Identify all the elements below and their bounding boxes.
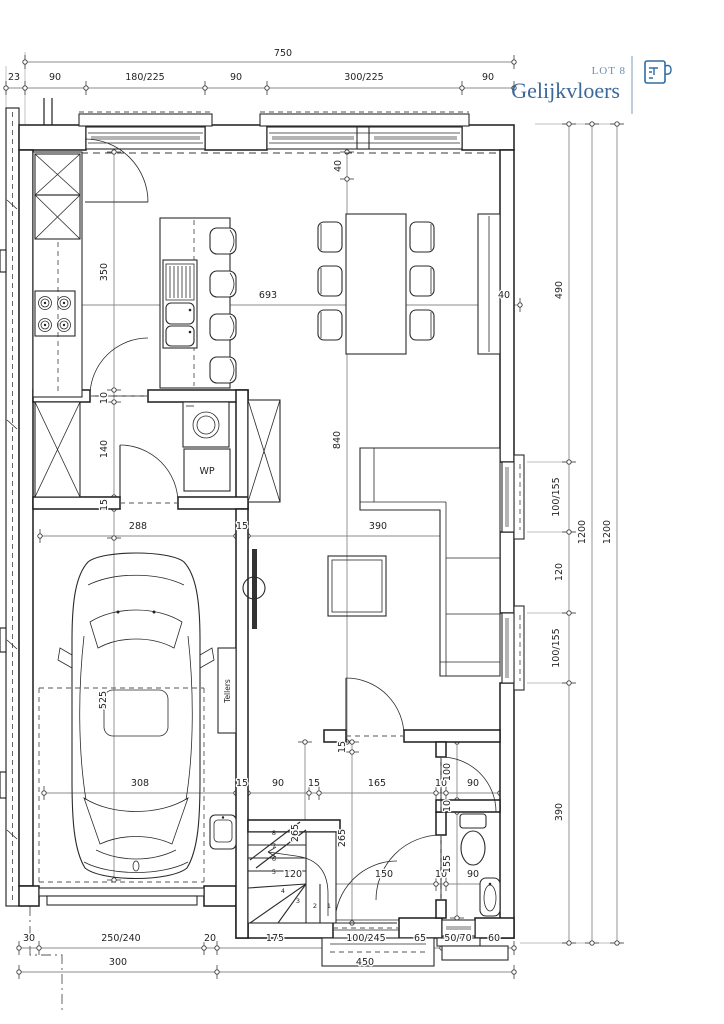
dimension-label: 15: [99, 499, 110, 511]
header: LOT 8 Gelijkvloers: [511, 56, 671, 114]
dimension-label: 90: [467, 869, 479, 880]
dimension-label: 150: [375, 869, 393, 880]
dimension-label: 40: [333, 160, 344, 172]
coffee-table: [328, 556, 386, 616]
dimension-label: 90: [467, 778, 479, 789]
dimension-label: 60: [488, 933, 500, 944]
dimension-label: 90: [230, 72, 242, 83]
dimension-label: 100/155: [551, 477, 562, 516]
dimension-label: 15: [337, 741, 348, 753]
dimension-marker: [345, 177, 349, 181]
bar-stool: [210, 314, 236, 340]
dimension-label: 300/225: [344, 72, 383, 83]
dimension-marker: [17, 946, 21, 950]
dimension-marker: [518, 303, 522, 307]
kitchen-counter: [33, 152, 82, 397]
dimension-label: 30: [23, 933, 35, 944]
dimension-label: 120: [554, 563, 565, 581]
dimension-label: 350: [99, 263, 110, 281]
sofa: [360, 448, 500, 676]
dimension-marker: [444, 791, 448, 795]
dimension-label: 525: [98, 691, 109, 709]
dimension-marker: [567, 530, 571, 534]
door-toilet: [376, 835, 441, 900]
kitchen: [33, 152, 236, 397]
door-garage-utility: [120, 445, 178, 503]
dimension-marker: [112, 150, 116, 154]
dimension-marker: [37, 946, 41, 950]
floor-plan-svg: WP Tellers: [0, 0, 724, 1024]
dining-chair: [318, 310, 342, 340]
dimension-marker: [434, 882, 438, 886]
island-sink: [163, 260, 197, 348]
stair-step-number: 4: [281, 887, 285, 895]
dimension-marker: [350, 740, 354, 744]
dimension-label: 155: [442, 855, 453, 873]
dimension-marker: [512, 970, 516, 974]
dimension-marker: [567, 460, 571, 464]
bar-stool: [210, 357, 236, 383]
dimension-marker: [202, 946, 206, 950]
dining: [318, 214, 500, 354]
dimension-marker: [215, 970, 219, 974]
dimension-marker: [567, 941, 571, 945]
dimension-marker: [317, 791, 321, 795]
dimension-label: 100: [442, 763, 453, 781]
dimension-label: 250/240: [101, 933, 140, 944]
stair-step-number: 2: [313, 902, 317, 910]
dimension-label: 65: [414, 933, 426, 944]
dimension-label: 180/225: [125, 72, 164, 83]
dimension-marker: [112, 388, 116, 392]
dimension-marker: [345, 150, 349, 154]
dimension-marker: [512, 60, 516, 64]
property-line: [30, 906, 62, 1014]
dining-chair: [410, 222, 434, 252]
heat-pump-label: WP: [199, 466, 214, 477]
toilet: [460, 814, 486, 865]
utility-sink-garage: [210, 815, 236, 849]
dimension-marker: [112, 400, 116, 404]
dimension-label: 288: [129, 521, 147, 532]
dimension-marker: [203, 86, 207, 90]
garage: Tellers: [39, 553, 236, 882]
dimension-marker: [567, 681, 571, 685]
lot-label: LOT 8: [592, 65, 626, 77]
stair-step-number: 8: [272, 829, 276, 837]
dimension-marker: [215, 946, 219, 950]
dimension-marker: [460, 86, 464, 90]
dimension-label: 1200: [577, 520, 588, 544]
dimension-marker: [590, 122, 594, 126]
dimension-marker: [567, 611, 571, 615]
hand-basin: [480, 878, 500, 916]
storage-closet-utility: [35, 402, 80, 497]
dimension-label: 120: [284, 869, 302, 880]
dimension-label: 1200: [602, 520, 613, 544]
dimension-label: 265: [337, 829, 348, 847]
floor-plan-page: WP Tellers: [0, 0, 724, 1024]
dimension-marker: [42, 791, 46, 795]
dining-chair: [410, 266, 434, 296]
dimension-label: 20: [204, 933, 216, 944]
meter-cabinet-label: Tellers: [223, 679, 232, 704]
dimension-label: 50/70: [444, 933, 471, 944]
dimension-label: 390: [369, 521, 387, 532]
meter-cabinet: Tellers: [218, 648, 236, 733]
floorplan-icon[interactable]: [645, 61, 671, 83]
utility-room: WP: [35, 402, 230, 497]
dimension-label: 490: [554, 281, 565, 299]
dimension-marker: [444, 882, 448, 886]
car: [58, 553, 214, 879]
dimension-marker: [17, 970, 21, 974]
dimension-label: 308: [131, 778, 149, 789]
dimension-label: 693: [259, 290, 277, 301]
living-room: [243, 400, 500, 676]
dining-chair: [410, 310, 434, 340]
dimension-marker: [615, 941, 619, 945]
dimension-marker: [112, 878, 116, 882]
dimension-marker: [265, 86, 269, 90]
bar-stool: [210, 271, 236, 297]
dimension-label: 390: [554, 803, 565, 821]
stair-step-number: 7: [272, 842, 276, 850]
dimension-label: 100/155: [551, 628, 562, 667]
dimension-label: 40: [498, 290, 510, 301]
dimension-marker: [434, 791, 438, 795]
dimension-label: 140: [99, 440, 110, 458]
window-living-1: [502, 455, 524, 539]
dimension-label: 10: [99, 392, 110, 404]
dimension-marker: [615, 122, 619, 126]
dimension-label: 90: [49, 72, 61, 83]
dimension-label: 10: [442, 800, 453, 812]
dining-chair: [318, 266, 342, 296]
dimension-label: 90: [482, 72, 494, 83]
storage-closet-living: [248, 400, 280, 502]
garage-door: [39, 882, 204, 905]
dimension-label: 450: [356, 957, 374, 968]
door-utility-kitchen: [90, 338, 148, 396]
dimension-marker: [84, 86, 88, 90]
kitchen-island: [160, 218, 236, 388]
dimension-label: 175: [266, 933, 284, 944]
dining-table: [346, 214, 406, 354]
dimension-marker: [512, 946, 516, 950]
window-kitchen: [79, 112, 212, 149]
door-living-hall: [346, 678, 404, 736]
stair-step-number: 5: [272, 868, 276, 876]
dimension-label: 23: [8, 72, 20, 83]
dimension-marker: [38, 534, 42, 538]
floor-title: Gelijkvloers: [511, 78, 620, 103]
dimension-marker: [23, 60, 27, 64]
dimension-marker: [4, 86, 8, 90]
toilet-room: [460, 814, 500, 916]
dimension-label: 90: [272, 778, 284, 789]
dimension-marker: [303, 740, 307, 744]
dimension-label: 100/245: [346, 933, 385, 944]
dimension-label: 15: [236, 521, 248, 532]
stair-step-number: 1: [327, 902, 331, 910]
dimension-marker: [350, 750, 354, 754]
bar-stool: [210, 228, 236, 254]
dining-chair: [318, 222, 342, 252]
dimension-label: 750: [274, 48, 292, 59]
dimension-marker: [23, 86, 27, 90]
heat-pump: WP: [184, 449, 230, 491]
stair-step-number: 3: [296, 897, 300, 905]
garage-door-clearance: [39, 688, 204, 882]
dimension-label: 840: [332, 431, 343, 449]
washing-machine: [183, 402, 229, 447]
stair-step-number: 6: [272, 855, 276, 863]
dimension-label: 165: [368, 778, 386, 789]
dimension-marker: [112, 536, 116, 540]
dimension-label: 265: [290, 824, 301, 842]
dimension-marker: [590, 941, 594, 945]
window-dining: [260, 112, 469, 149]
window-living-2: [502, 606, 524, 690]
dimension-label: 15: [308, 778, 320, 789]
dimension-label: 300: [109, 957, 127, 968]
dimension-marker: [567, 122, 571, 126]
dimension-marker: [307, 791, 311, 795]
dimension-label: 15: [236, 778, 248, 789]
